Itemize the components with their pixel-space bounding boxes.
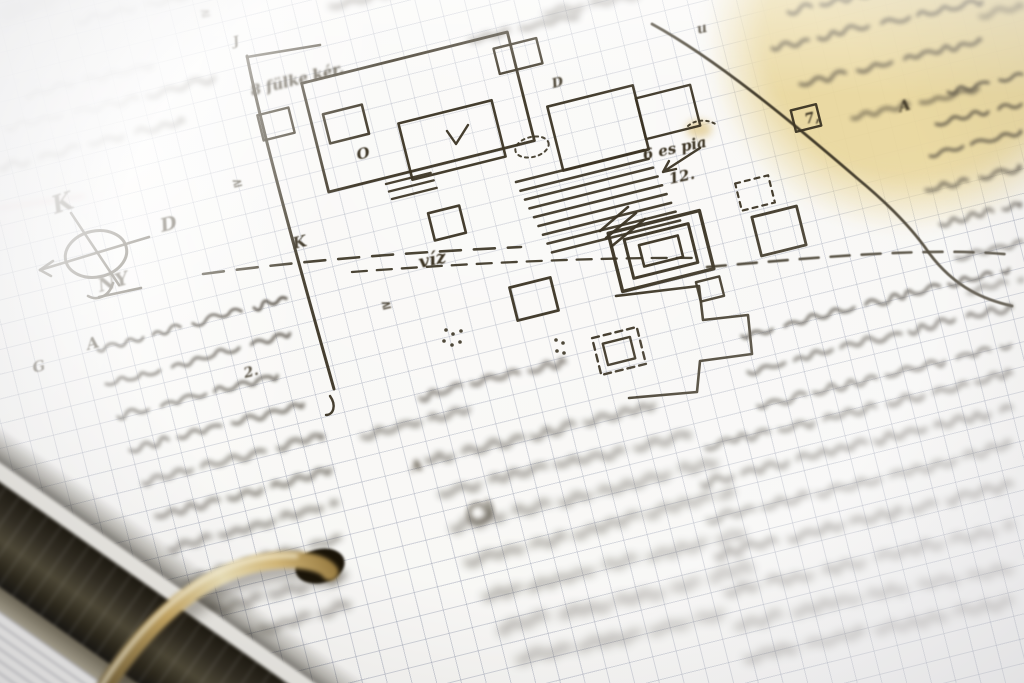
- sketch-stroke: [247, 45, 320, 57]
- sketch-stroke: [247, 56, 334, 389]
- hatch-line: [525, 168, 653, 200]
- annotation-label: G: [30, 356, 47, 377]
- annotation-label: NY: [94, 266, 133, 297]
- annotation-label: O: [355, 143, 372, 164]
- annotation-label: u: [695, 20, 709, 38]
- plan-rect: [735, 175, 775, 210]
- handwriting-line: [130, 404, 303, 451]
- handwriting-line: [440, 434, 689, 495]
- compass-axis: [40, 261, 53, 270]
- binder-spine: [0, 370, 559, 683]
- handwriting-line: [466, 490, 733, 564]
- handwriting-line: [852, 88, 978, 119]
- hatch-line: [389, 180, 434, 191]
- annotation-label: 7,: [803, 109, 821, 128]
- handwriting: [0, 0, 1023, 661]
- handwriting-line: [118, 376, 277, 419]
- binder-ring: [96, 560, 330, 683]
- handwriting-line: [940, 203, 1021, 226]
- handwriting-line: [4, 0, 88, 17]
- plan-rect: [636, 85, 700, 139]
- handwriting-line: [706, 371, 1011, 449]
- handwriting-line: [926, 166, 1021, 191]
- handwriting-line: [156, 469, 330, 516]
- handwriting-line: [6, 603, 58, 638]
- page-edge-shadow: [0, 370, 559, 683]
- plan-rect: [323, 105, 369, 144]
- handwriting-line: [716, 483, 1012, 558]
- sketch-stroke: [447, 125, 468, 144]
- plan-dot: [442, 339, 446, 343]
- handwriting-line: [948, 74, 1022, 94]
- plan-dot: [444, 328, 448, 332]
- plan-rect: [398, 100, 505, 180]
- annotation-label: 2.: [241, 363, 260, 382]
- handwriting-line: [702, 407, 1012, 487]
- plan-rect: [752, 206, 806, 256]
- plan-dot: [451, 332, 455, 336]
- hatch-line: [521, 159, 649, 191]
- plan-dot: [554, 338, 558, 342]
- handwriting-line: [214, 604, 348, 643]
- plan-rect: [257, 108, 294, 141]
- compass-circle: [61, 225, 131, 283]
- handwriting-line: [742, 269, 1009, 338]
- sketch-stroke: [652, 24, 1012, 306]
- annotation-label: D: [157, 211, 180, 237]
- dashed-line: [707, 252, 1014, 267]
- coffee-stain-drop: [686, 120, 712, 138]
- dashed-line: [203, 247, 521, 274]
- sketch-stroke: [600, 207, 645, 246]
- ring-shadow: [102, 570, 336, 683]
- hatch-line: [534, 185, 662, 217]
- plan-dot: [459, 329, 463, 333]
- sketch-stroke: [663, 148, 700, 172]
- annotation-label: ≥: [198, 5, 212, 22]
- handwriting-line: [518, 612, 722, 661]
- page-edge: [0, 395, 542, 683]
- compass-axis: [88, 283, 113, 298]
- handwriting-line: [800, 39, 981, 85]
- hatch-line: [392, 188, 437, 199]
- annotation-label: 6 es pia: [641, 133, 708, 164]
- plan-dot: [555, 349, 559, 353]
- compass-axis: [40, 270, 51, 276]
- sketch-stroke: [469, 501, 491, 522]
- sketch-stroke: [0, 196, 84, 208]
- ring-svg: [0, 0, 1024, 683]
- binder-ring-highlight: [94, 556, 296, 683]
- plan-dot: [450, 343, 454, 347]
- notebook-photo: KDNYKvíz8 fülke kér.6 es pia12.Ou7,≥≥≥JD…: [0, 0, 1024, 683]
- handwriting-line: [362, 409, 469, 438]
- spine-band: [0, 408, 533, 683]
- handwriting-line: [956, 241, 1022, 259]
- handwriting-line: [500, 565, 750, 632]
- plan-rect: [592, 327, 646, 375]
- compass-axis: [40, 237, 149, 270]
- handwriting-line: [200, 574, 345, 613]
- hatch-line: [543, 203, 671, 235]
- annotation-label: K: [47, 185, 78, 220]
- plan-rect: [302, 32, 535, 192]
- handwriting-line: [736, 567, 1012, 627]
- handwriting-line: [726, 523, 1013, 594]
- hatch-line: [386, 173, 431, 184]
- annotation-label: ≥: [230, 175, 244, 192]
- spine-highlight: [0, 478, 483, 683]
- handwriting-line: [980, 4, 1023, 17]
- well-square: [624, 224, 698, 279]
- plan-dot: [458, 340, 462, 344]
- plan-rect: [696, 276, 724, 301]
- annotation-label: A: [895, 96, 913, 117]
- hatch-line: [530, 176, 658, 208]
- plan-rect: [791, 104, 822, 132]
- coffee-stain: [695, 0, 1024, 260]
- hatch-line: [552, 220, 680, 252]
- plan-rect: [547, 85, 648, 170]
- graph-paper-page: [0, 0, 1024, 683]
- handwriting-line: [545, 0, 692, 15]
- dashed-line: [688, 121, 717, 126]
- light-wash-bottom-right: [0, 0, 1024, 683]
- handwriting-line: [184, 537, 340, 583]
- handwriting-line: [930, 131, 1021, 157]
- handwriting-line: [746, 600, 1012, 661]
- plan-sketch: [0, 24, 1014, 522]
- light-wash-top: [0, 0, 1024, 683]
- handwriting-line: [0, 119, 184, 170]
- well-square: [639, 235, 683, 266]
- hatch-line: [539, 194, 667, 226]
- annotation-label: ≥: [379, 297, 393, 314]
- sketch-stroke: [616, 286, 752, 398]
- plan-rect: [510, 277, 559, 320]
- plan-rect: [603, 337, 635, 365]
- handwriting-line: [26, 66, 152, 99]
- handwriting-line: [788, 0, 973, 14]
- annotation-label: A: [82, 332, 101, 354]
- handwriting-line: [330, 0, 515, 7]
- handwriting-line: [452, 462, 716, 530]
- compass-axis: [71, 213, 119, 285]
- plan-dot: [561, 341, 565, 345]
- dashed-line: [352, 258, 700, 272]
- annotation-label: J: [228, 34, 241, 51]
- punch-hole: [292, 543, 349, 588]
- handwriting-line: [470, 16, 578, 40]
- handwriting-line: [106, 334, 290, 385]
- handwriting-line: [420, 359, 565, 400]
- annotation-label: 8 fülke kér.: [249, 59, 346, 100]
- compass-axis: [99, 288, 141, 297]
- handwriting-line: [6, 77, 214, 129]
- handwriting-line: [143, 435, 322, 485]
- handwriting-line: [772, 1, 982, 50]
- underlying-pages-soft: [0, 594, 402, 683]
- handwriting-line: [78, 0, 322, 23]
- handwriting-line: [98, 298, 286, 352]
- handwriting-line: [968, 279, 1023, 293]
- annotation-labels: KDNYKvíz8 fülke kér.6 es pia12.Ou7,≥≥≥JD…: [30, 5, 912, 477]
- scene-svg: KDNYKvíz8 fülke kér.6 es pia12.Ou7,≥≥≥JD…: [0, 0, 1024, 683]
- annotation-label: víz: [417, 246, 449, 272]
- plan-dot: [562, 351, 566, 355]
- vignette: [0, 0, 1024, 683]
- handwriting-line: [936, 104, 1021, 125]
- plan-rect: [428, 206, 466, 241]
- well-square: [608, 211, 714, 292]
- sketch-stroke: [326, 396, 334, 415]
- plan-rect: [494, 38, 543, 74]
- dashed-ellipse: [513, 133, 551, 161]
- annotation-label: 12.: [667, 165, 696, 188]
- light-wash-top-left: [0, 0, 1024, 683]
- hatch-line: [548, 212, 676, 244]
- annotation-label: A: [407, 456, 425, 477]
- handwriting-line: [484, 533, 743, 598]
- annotation-label: K: [289, 231, 309, 253]
- handwriting-line: [758, 345, 1011, 408]
- handwriting-line: [708, 442, 1010, 523]
- underlying-pages: [0, 495, 472, 683]
- handwriting-line: [748, 305, 1012, 374]
- hatch-line: [516, 150, 644, 182]
- handwriting-line: [426, 404, 654, 461]
- handwriting-line: [170, 502, 337, 551]
- light-wash-left: [0, 0, 1024, 683]
- annotation-label: D: [549, 74, 565, 92]
